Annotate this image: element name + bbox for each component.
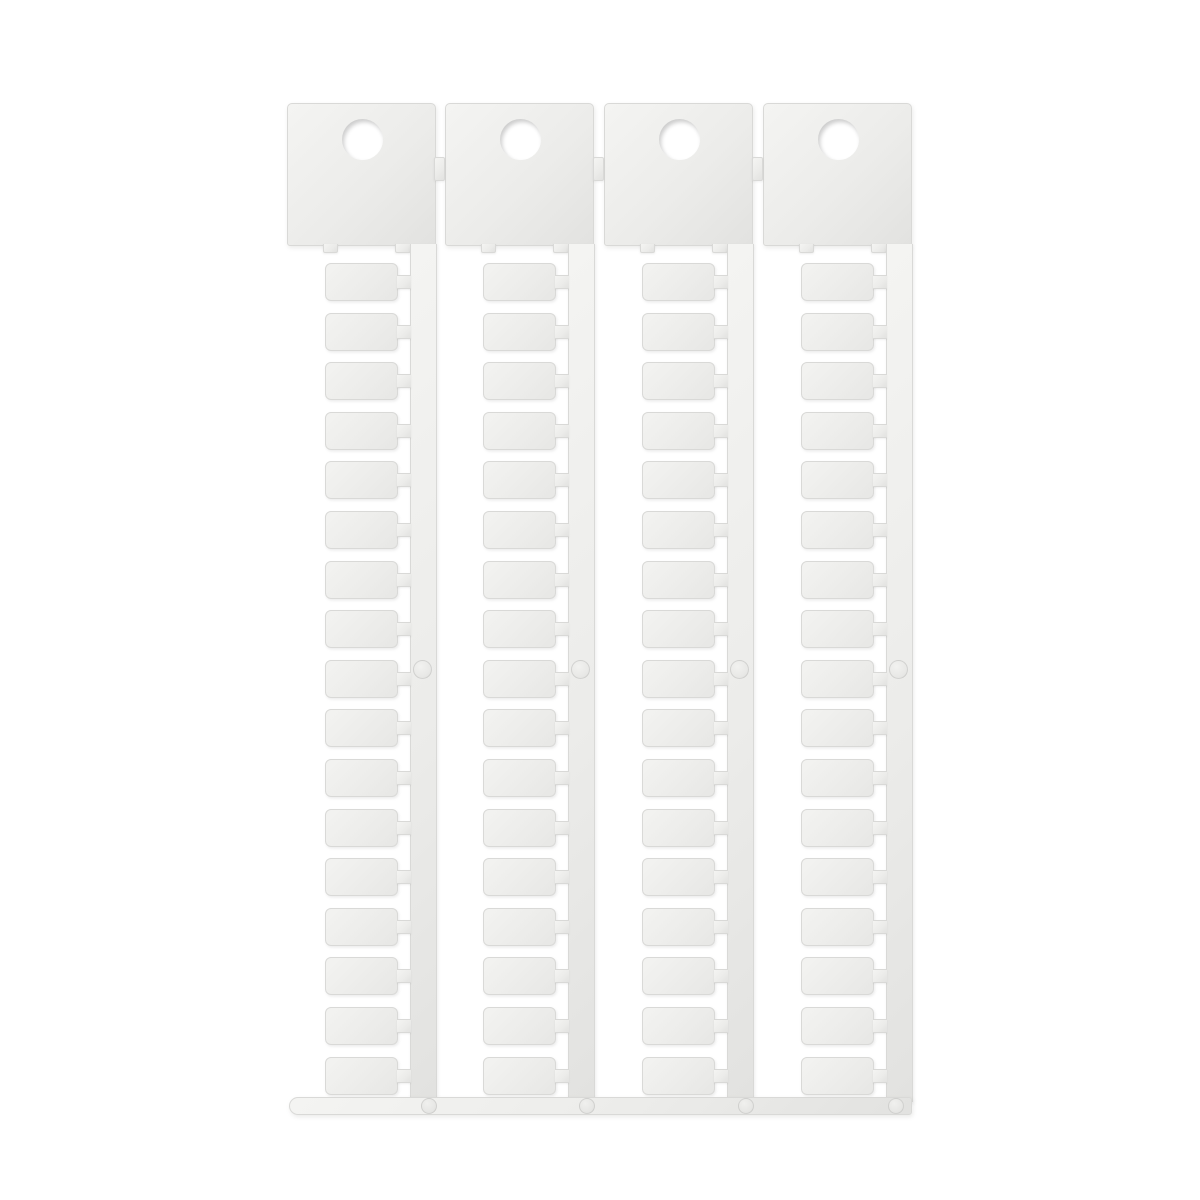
header-stub bbox=[799, 244, 814, 253]
marker-tag bbox=[483, 412, 556, 450]
marker-tag bbox=[483, 561, 556, 599]
marker-strip bbox=[604, 103, 755, 1118]
marker-tag bbox=[325, 809, 398, 847]
header-connector-nub bbox=[434, 157, 445, 181]
tag-connector-nub bbox=[714, 721, 728, 735]
marker-tag bbox=[325, 709, 398, 747]
strip-header-tab bbox=[445, 103, 594, 246]
marker-tag bbox=[325, 1057, 398, 1095]
tag-connector-nub bbox=[397, 374, 411, 388]
header-stub bbox=[323, 244, 338, 253]
tag-connector-nub bbox=[397, 721, 411, 735]
marker-tag bbox=[483, 511, 556, 549]
tag-connector-nub bbox=[873, 721, 887, 735]
marker-tag bbox=[642, 1057, 715, 1095]
tag-connector-nub bbox=[714, 821, 728, 835]
strip-header-tab bbox=[287, 103, 436, 246]
marker-tag bbox=[801, 858, 874, 896]
strip-header-tab bbox=[763, 103, 912, 246]
header-stub bbox=[712, 244, 728, 253]
runner-junction-mark bbox=[421, 1098, 437, 1114]
tag-connector-nub bbox=[714, 275, 728, 289]
runner-junction-mark bbox=[579, 1098, 595, 1114]
marker-tag bbox=[483, 957, 556, 995]
tag-connector-nub bbox=[714, 523, 728, 537]
tag-connector-nub bbox=[873, 1069, 887, 1083]
marker-tag bbox=[325, 908, 398, 946]
ejector-pin-mark bbox=[571, 660, 590, 679]
marker-tag bbox=[801, 957, 874, 995]
tag-connector-nub bbox=[555, 325, 569, 339]
marker-tag bbox=[801, 263, 874, 301]
tag-connector-nub bbox=[555, 573, 569, 587]
tag-connector-nub bbox=[873, 573, 887, 587]
marker-tag bbox=[642, 412, 715, 450]
marker-tag bbox=[801, 461, 874, 499]
tag-connector-nub bbox=[714, 672, 728, 686]
tag-connector-nub bbox=[555, 374, 569, 388]
hanging-hole bbox=[500, 119, 541, 160]
marker-tag bbox=[325, 1007, 398, 1045]
tag-connector-nub bbox=[873, 374, 887, 388]
marker-tag bbox=[483, 759, 556, 797]
tag-connector-nub bbox=[555, 920, 569, 934]
marker-tag bbox=[801, 809, 874, 847]
bottom-runner-bar bbox=[289, 1097, 912, 1115]
marker-tag bbox=[801, 412, 874, 450]
tag-connector-nub bbox=[555, 275, 569, 289]
tag-connector-nub bbox=[873, 325, 887, 339]
marker-tag bbox=[801, 908, 874, 946]
tag-connector-nub bbox=[397, 473, 411, 487]
marker-tag bbox=[483, 809, 556, 847]
tag-connector-nub bbox=[397, 672, 411, 686]
marker-tag bbox=[801, 511, 874, 549]
marker-tag bbox=[801, 610, 874, 648]
marker-tag bbox=[325, 511, 398, 549]
tag-connector-nub bbox=[873, 920, 887, 934]
tag-connector-nub bbox=[873, 1019, 887, 1033]
header-stub bbox=[395, 244, 411, 253]
tag-connector-nub bbox=[873, 523, 887, 537]
tag-connector-nub bbox=[873, 622, 887, 636]
tag-connector-nub bbox=[555, 721, 569, 735]
tag-connector-nub bbox=[397, 1069, 411, 1083]
tag-connector-nub bbox=[714, 424, 728, 438]
tag-connector-nub bbox=[714, 473, 728, 487]
hanging-hole bbox=[659, 119, 700, 160]
marker-tag bbox=[642, 709, 715, 747]
marker-tag bbox=[642, 313, 715, 351]
marker-tag bbox=[801, 561, 874, 599]
marker-tag bbox=[801, 660, 874, 698]
marker-tag bbox=[801, 313, 874, 351]
hanging-hole bbox=[818, 119, 859, 160]
tag-connector-nub bbox=[714, 1019, 728, 1033]
marker-tag bbox=[642, 511, 715, 549]
tag-connector-nub bbox=[714, 920, 728, 934]
tag-connector-nub bbox=[397, 424, 411, 438]
tag-connector-nub bbox=[714, 573, 728, 587]
marker-tag bbox=[483, 858, 556, 896]
tag-connector-nub bbox=[555, 473, 569, 487]
marker-tag bbox=[325, 263, 398, 301]
marker-tag bbox=[642, 561, 715, 599]
marker-tag bbox=[642, 858, 715, 896]
tag-connector-nub bbox=[397, 325, 411, 339]
tag-connector-nub bbox=[555, 870, 569, 884]
marker-tag bbox=[642, 759, 715, 797]
header-stub bbox=[640, 244, 655, 253]
header-stub bbox=[481, 244, 496, 253]
marker-tag bbox=[483, 908, 556, 946]
tag-connector-nub bbox=[714, 622, 728, 636]
tag-connector-nub bbox=[555, 672, 569, 686]
marker-tag bbox=[325, 561, 398, 599]
tag-connector-nub bbox=[714, 374, 728, 388]
strip-header-tab bbox=[604, 103, 753, 246]
marker-tag bbox=[642, 362, 715, 400]
tag-connector-nub bbox=[873, 672, 887, 686]
hanging-hole bbox=[342, 119, 383, 160]
marker-tag bbox=[325, 858, 398, 896]
marker-tag bbox=[483, 313, 556, 351]
tag-connector-nub bbox=[873, 473, 887, 487]
tag-connector-nub bbox=[397, 573, 411, 587]
marker-tag bbox=[801, 1057, 874, 1095]
marker-tag bbox=[801, 709, 874, 747]
marker-tag bbox=[325, 313, 398, 351]
marker-strip bbox=[763, 103, 914, 1118]
marker-strip bbox=[287, 103, 438, 1118]
tag-connector-nub bbox=[873, 821, 887, 835]
ejector-pin-mark bbox=[730, 660, 749, 679]
tag-connector-nub bbox=[555, 523, 569, 537]
marker-tag bbox=[325, 759, 398, 797]
marker-tag bbox=[642, 610, 715, 648]
marker-tag bbox=[483, 610, 556, 648]
marker-tag-sprue bbox=[0, 0, 1200, 1200]
tag-connector-nub bbox=[397, 275, 411, 289]
runner-junction-mark bbox=[888, 1098, 904, 1114]
tag-connector-nub bbox=[397, 969, 411, 983]
tag-connector-nub bbox=[397, 622, 411, 636]
marker-tag bbox=[642, 461, 715, 499]
product-photo bbox=[0, 0, 1200, 1200]
marker-tag bbox=[483, 709, 556, 747]
tag-connector-nub bbox=[397, 523, 411, 537]
marker-tag bbox=[483, 1057, 556, 1095]
tag-connector-nub bbox=[555, 771, 569, 785]
marker-tag bbox=[801, 362, 874, 400]
marker-tag bbox=[325, 362, 398, 400]
tag-connector-nub bbox=[555, 622, 569, 636]
header-connector-nub bbox=[752, 157, 763, 181]
tag-connector-nub bbox=[714, 870, 728, 884]
runner-junction-mark bbox=[738, 1098, 754, 1114]
header-connector-nub bbox=[593, 157, 604, 181]
marker-tag bbox=[483, 263, 556, 301]
marker-tag bbox=[801, 759, 874, 797]
marker-tag bbox=[483, 660, 556, 698]
tag-connector-nub bbox=[714, 325, 728, 339]
tag-connector-nub bbox=[555, 821, 569, 835]
marker-tag bbox=[325, 412, 398, 450]
tag-connector-nub bbox=[873, 870, 887, 884]
marker-strip bbox=[445, 103, 596, 1118]
tag-connector-nub bbox=[397, 920, 411, 934]
tag-connector-nub bbox=[873, 969, 887, 983]
tag-connector-nub bbox=[873, 275, 887, 289]
marker-tag bbox=[325, 461, 398, 499]
marker-tag bbox=[642, 908, 715, 946]
tag-connector-nub bbox=[714, 771, 728, 785]
ejector-pin-mark bbox=[889, 660, 908, 679]
marker-tag bbox=[642, 660, 715, 698]
marker-tag bbox=[483, 1007, 556, 1045]
marker-tag bbox=[642, 809, 715, 847]
marker-tag bbox=[642, 1007, 715, 1045]
marker-tag bbox=[325, 660, 398, 698]
header-stub bbox=[871, 244, 887, 253]
marker-tag bbox=[325, 610, 398, 648]
tag-connector-nub bbox=[397, 1019, 411, 1033]
header-stub bbox=[553, 244, 569, 253]
tag-connector-nub bbox=[397, 821, 411, 835]
marker-tag bbox=[642, 263, 715, 301]
tag-connector-nub bbox=[555, 1019, 569, 1033]
ejector-pin-mark bbox=[413, 660, 432, 679]
tag-connector-nub bbox=[873, 424, 887, 438]
tag-connector-nub bbox=[397, 870, 411, 884]
tag-connector-nub bbox=[714, 1069, 728, 1083]
marker-tag bbox=[483, 362, 556, 400]
marker-tag bbox=[483, 461, 556, 499]
marker-tag bbox=[325, 957, 398, 995]
marker-tag bbox=[801, 1007, 874, 1045]
tag-connector-nub bbox=[555, 969, 569, 983]
tag-connector-nub bbox=[873, 771, 887, 785]
tag-connector-nub bbox=[555, 1069, 569, 1083]
tag-connector-nub bbox=[714, 969, 728, 983]
marker-tag bbox=[642, 957, 715, 995]
tag-connector-nub bbox=[397, 771, 411, 785]
tag-connector-nub bbox=[555, 424, 569, 438]
